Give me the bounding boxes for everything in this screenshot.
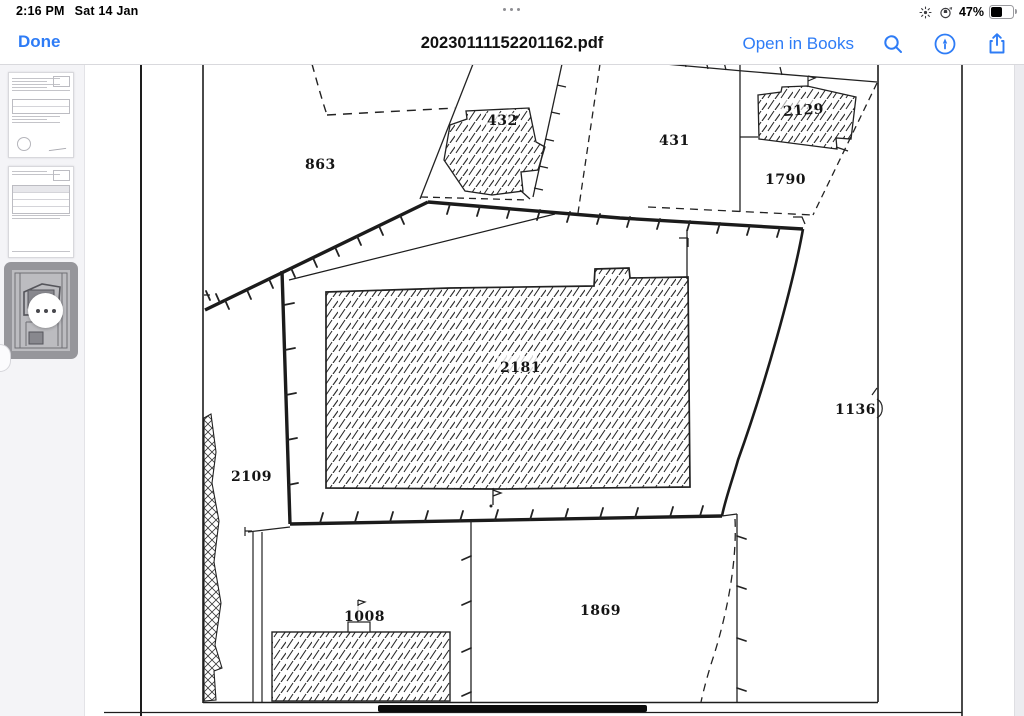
status-center-dots xyxy=(503,8,520,11)
battery-percent: 47% xyxy=(959,5,984,19)
parcel-label-432: 432 xyxy=(487,113,518,129)
parcel-label-431: 431 xyxy=(659,133,690,149)
brightness-icon xyxy=(919,5,933,19)
parcel-label-1008: 1008 xyxy=(344,609,385,625)
thumbnail-sidebar xyxy=(0,64,85,716)
page-2-thumbnail[interactable] xyxy=(8,166,74,258)
page-3-thumbnail-selected[interactable] xyxy=(4,262,78,359)
open-in-books-button[interactable]: Open in Books xyxy=(742,34,854,54)
parcel-label-2181: 2181 xyxy=(500,360,541,376)
page-1-thumbnail[interactable] xyxy=(8,72,74,158)
orientation-lock-icon xyxy=(938,5,954,19)
parcel-label-1136: 1136 xyxy=(835,402,876,418)
status-time: 2:16 PM xyxy=(16,4,65,18)
page-more-button[interactable] xyxy=(28,293,63,328)
pdf-page[interactable]: 863 432 431 2129 1790 2181 1136 2109 100… xyxy=(84,64,1024,716)
search-icon[interactable] xyxy=(880,31,906,57)
parcel-label-1869: 1869 xyxy=(580,603,621,619)
form-box xyxy=(53,76,70,87)
status-bar: 2:16 PMSat 14 Jan 47% xyxy=(0,0,1024,24)
status-right-icons: 47% xyxy=(919,3,1014,21)
cadastral-map: 863 432 431 2129 1790 2181 1136 2109 100… xyxy=(84,64,1024,716)
stamp-icon xyxy=(17,137,31,151)
parcel-label-1790: 1790 xyxy=(765,172,806,188)
page-edge-gap xyxy=(1014,64,1024,716)
signature-squiggle xyxy=(49,141,70,151)
parcel-label-2109: 2109 xyxy=(231,469,272,485)
form-box xyxy=(53,170,70,181)
toolbar: Done 20230111152201162.pdf Open in Books xyxy=(0,24,1024,65)
building-2181 xyxy=(326,268,690,489)
status-date: Sat 14 Jan xyxy=(75,4,139,18)
status-time-date: 2:16 PMSat 14 Jan xyxy=(16,4,139,18)
markup-icon[interactable] xyxy=(932,31,958,57)
parcel-label-2129: 2129 xyxy=(783,101,825,120)
share-icon[interactable] xyxy=(984,31,1010,57)
strip-parcel-2109 xyxy=(204,414,222,701)
parcel-label-863: 863 xyxy=(305,157,336,173)
battery-icon xyxy=(989,5,1014,19)
ipad-screen: 2:16 PMSat 14 Jan 47% Done 2023011115220… xyxy=(0,0,1024,716)
building-1008 xyxy=(272,632,450,701)
survey-flag-2129 xyxy=(808,76,815,86)
survey-flag-2181 xyxy=(493,488,501,505)
scale-bar xyxy=(378,705,647,712)
